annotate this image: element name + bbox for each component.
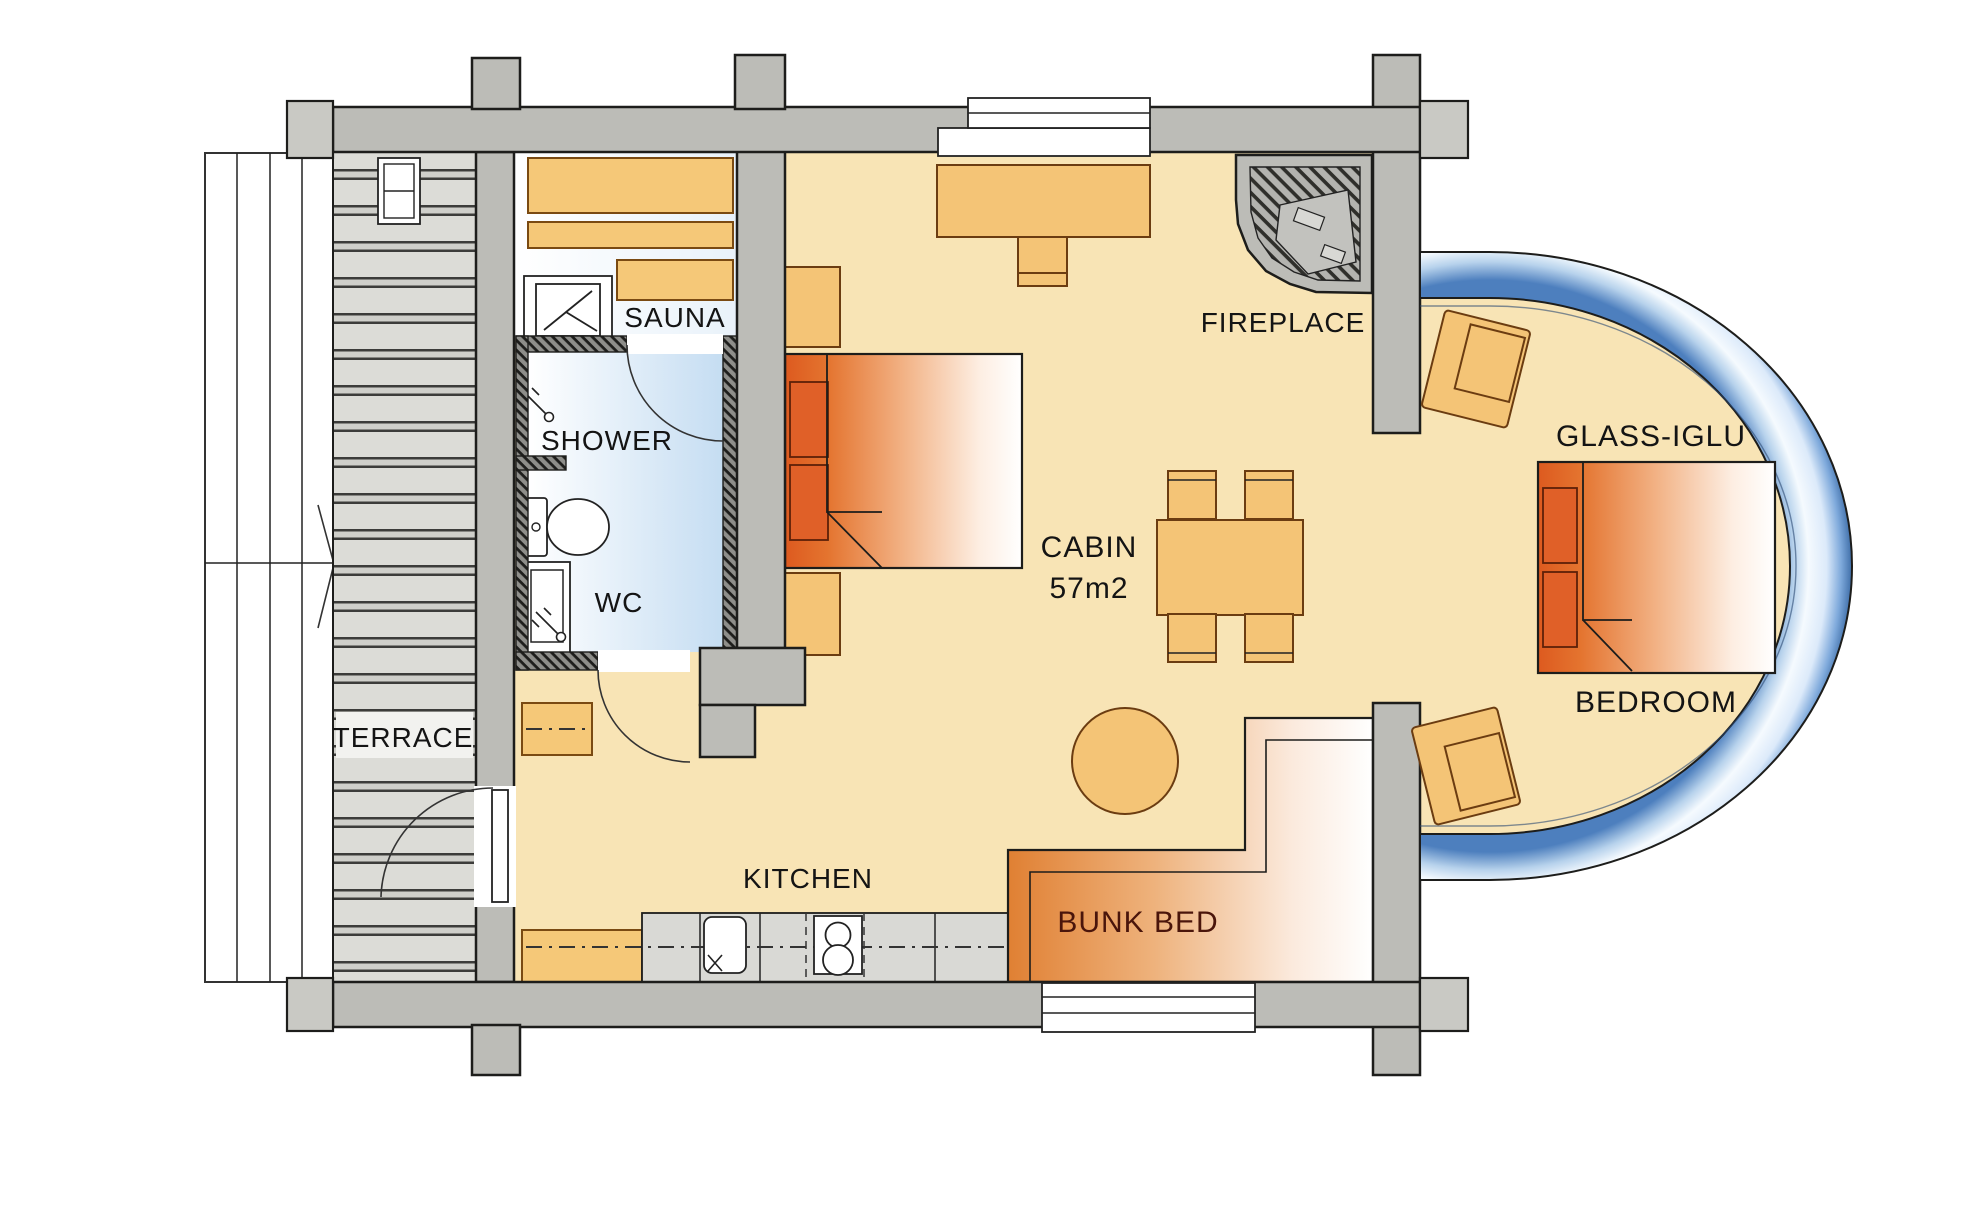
log-stub-top-a (472, 58, 520, 109)
label-sauna: SAUNA (624, 302, 725, 333)
terrace-area (205, 152, 476, 982)
log-end-bottom-left (287, 978, 333, 1031)
dining-chair (1168, 471, 1216, 519)
kitchen-sink (704, 917, 746, 973)
label-glass-iglu: GLASS-IGLU (1556, 420, 1746, 453)
label-bunk-bed: BUNK BED (1057, 906, 1218, 939)
desk-chair-back (1018, 273, 1067, 286)
bed-pillow (790, 465, 828, 540)
stove-burner-icon (823, 945, 853, 975)
round-stool (1072, 708, 1178, 814)
label-fireplace: FIREPLACE (1201, 307, 1366, 338)
dining-chair (1245, 614, 1293, 662)
sauna-bench (617, 260, 733, 300)
cabin-floorplan: SAUNA SHOWER WC TERRACE KITCHEN CABIN 57… (0, 0, 1971, 1222)
nightstand-top (785, 267, 840, 347)
wall-top (333, 107, 1420, 152)
bed-pillow (790, 382, 828, 457)
hatched-wall-top (516, 336, 627, 352)
log-end-top-left (287, 101, 333, 158)
log-stub-bottom (472, 1025, 520, 1075)
log-stub-top-b (735, 55, 785, 109)
window-top-sill (938, 128, 1150, 156)
dining-table (1157, 520, 1303, 615)
toilet-bowl (547, 499, 609, 555)
label-kitchen: KITCHEN (743, 863, 873, 894)
sauna-bench (528, 222, 733, 248)
label-cabin: CABIN (1041, 531, 1138, 564)
sauna-door-opening (627, 334, 723, 354)
wall-bottom (333, 982, 1420, 1027)
bathroom-door-opening (598, 650, 690, 672)
sauna-bench (528, 158, 733, 213)
label-shower: SHOWER (541, 425, 673, 456)
label-cabin-area: 57m2 (1049, 572, 1128, 605)
log-end-bottom-right (1420, 978, 1468, 1031)
dining-chair (1168, 614, 1216, 662)
kitchen-cabinet-lower (522, 930, 642, 982)
stove-burner-icon (826, 923, 851, 948)
hatched-wall-bottom (516, 652, 598, 670)
window-bottom (1042, 983, 1255, 1032)
hatched-partition (516, 456, 566, 470)
iglu-bed-pillow (1543, 488, 1577, 563)
label-terrace: TERRACE (333, 722, 474, 753)
terrace-planks (333, 152, 476, 982)
label-wc: WC (595, 587, 644, 618)
dining-chair (1245, 471, 1293, 519)
entrance-door-leaf (492, 790, 508, 902)
nightstand-bottom (785, 573, 840, 655)
wall-sauna-cabin-foot (700, 648, 805, 705)
log-end-top-right (1420, 101, 1468, 158)
iglu-opening-floor (1373, 433, 1420, 703)
iglu-bed-pillow (1543, 572, 1577, 647)
label-bedroom: BEDROOM (1575, 686, 1737, 719)
wall-sauna-cabin-step (700, 705, 755, 757)
wall-sauna-cabin (737, 107, 785, 648)
deck-boards (205, 153, 333, 982)
desk-chair (1018, 237, 1067, 275)
desk (937, 165, 1150, 237)
hatched-wall-right (723, 336, 737, 655)
floorplan-page: SAUNA SHOWER WC TERRACE KITCHEN CABIN 57… (0, 0, 1971, 1222)
hatched-wall-left (516, 336, 528, 670)
